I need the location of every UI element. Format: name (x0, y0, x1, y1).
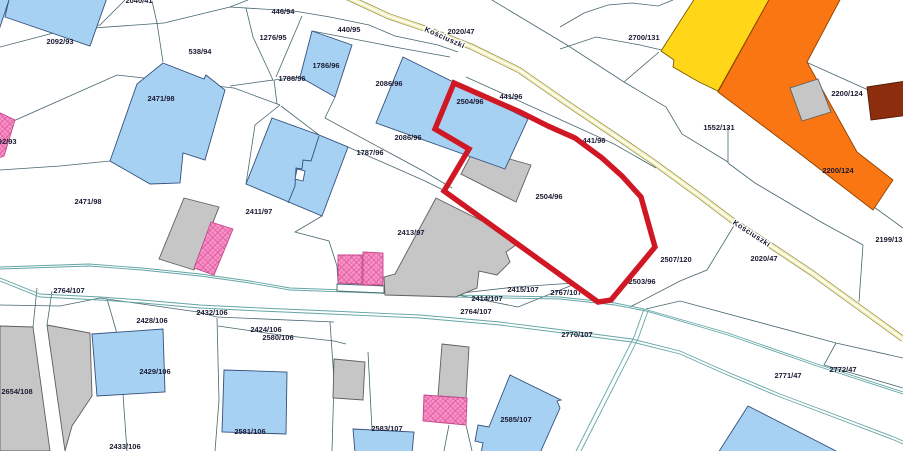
svg-text:2504/96: 2504/96 (456, 97, 483, 106)
svg-text:2415/107: 2415/107 (507, 285, 538, 294)
svg-text:1276/95: 1276/95 (259, 33, 286, 42)
svg-text:2413/97: 2413/97 (397, 228, 424, 237)
svg-text:2428/106: 2428/106 (136, 316, 167, 325)
svg-text:2020/47: 2020/47 (750, 254, 777, 263)
svg-text:2764/107: 2764/107 (460, 307, 491, 316)
svg-text:1786/96: 1786/96 (278, 74, 305, 83)
svg-text:2585/107: 2585/107 (500, 415, 531, 424)
svg-text:2432/106: 2432/106 (196, 308, 227, 317)
svg-text:2471/98: 2471/98 (74, 197, 101, 206)
svg-text:2411/97: 2411/97 (246, 207, 273, 216)
svg-text:2772/47: 2772/47 (829, 365, 856, 374)
svg-text:2700/131: 2700/131 (628, 33, 659, 42)
svg-text:2086/96: 2086/96 (375, 79, 402, 88)
svg-text:2200/124: 2200/124 (822, 166, 854, 175)
svg-text:1786/96: 1786/96 (312, 61, 339, 70)
svg-text:440/95: 440/95 (338, 25, 361, 34)
svg-text:2414/107: 2414/107 (471, 294, 502, 303)
svg-text:2040/41: 2040/41 (125, 0, 152, 5)
svg-text:2771/47: 2771/47 (774, 371, 801, 380)
svg-text:2654/108: 2654/108 (1, 387, 32, 396)
svg-text:2429/106: 2429/106 (139, 367, 170, 376)
svg-text:2503/96: 2503/96 (628, 277, 655, 286)
svg-text:2581/106: 2581/106 (234, 427, 265, 436)
svg-text:2471/98: 2471/98 (147, 94, 174, 103)
svg-text:2507/120: 2507/120 (660, 255, 691, 264)
svg-text:2092/93: 2092/93 (0, 137, 17, 146)
svg-text:441/96: 441/96 (500, 92, 523, 101)
svg-text:2433/106: 2433/106 (109, 442, 140, 451)
svg-text:538/94: 538/94 (189, 47, 213, 56)
svg-text:2770/107: 2770/107 (561, 330, 592, 339)
svg-text:2200/124: 2200/124 (831, 89, 863, 98)
svg-text:2086/96: 2086/96 (394, 133, 421, 142)
svg-text:1787/96: 1787/96 (356, 148, 383, 157)
svg-text:2764/107: 2764/107 (53, 286, 84, 295)
svg-text:2199/131: 2199/131 (875, 235, 903, 244)
svg-text:2583/107: 2583/107 (371, 424, 402, 433)
svg-text:446/94: 446/94 (272, 7, 296, 16)
svg-text:2504/96: 2504/96 (535, 192, 562, 201)
svg-text:1552/131: 1552/131 (703, 123, 734, 132)
svg-text:2092/93: 2092/93 (46, 37, 73, 46)
svg-text:2580/106: 2580/106 (262, 333, 293, 342)
